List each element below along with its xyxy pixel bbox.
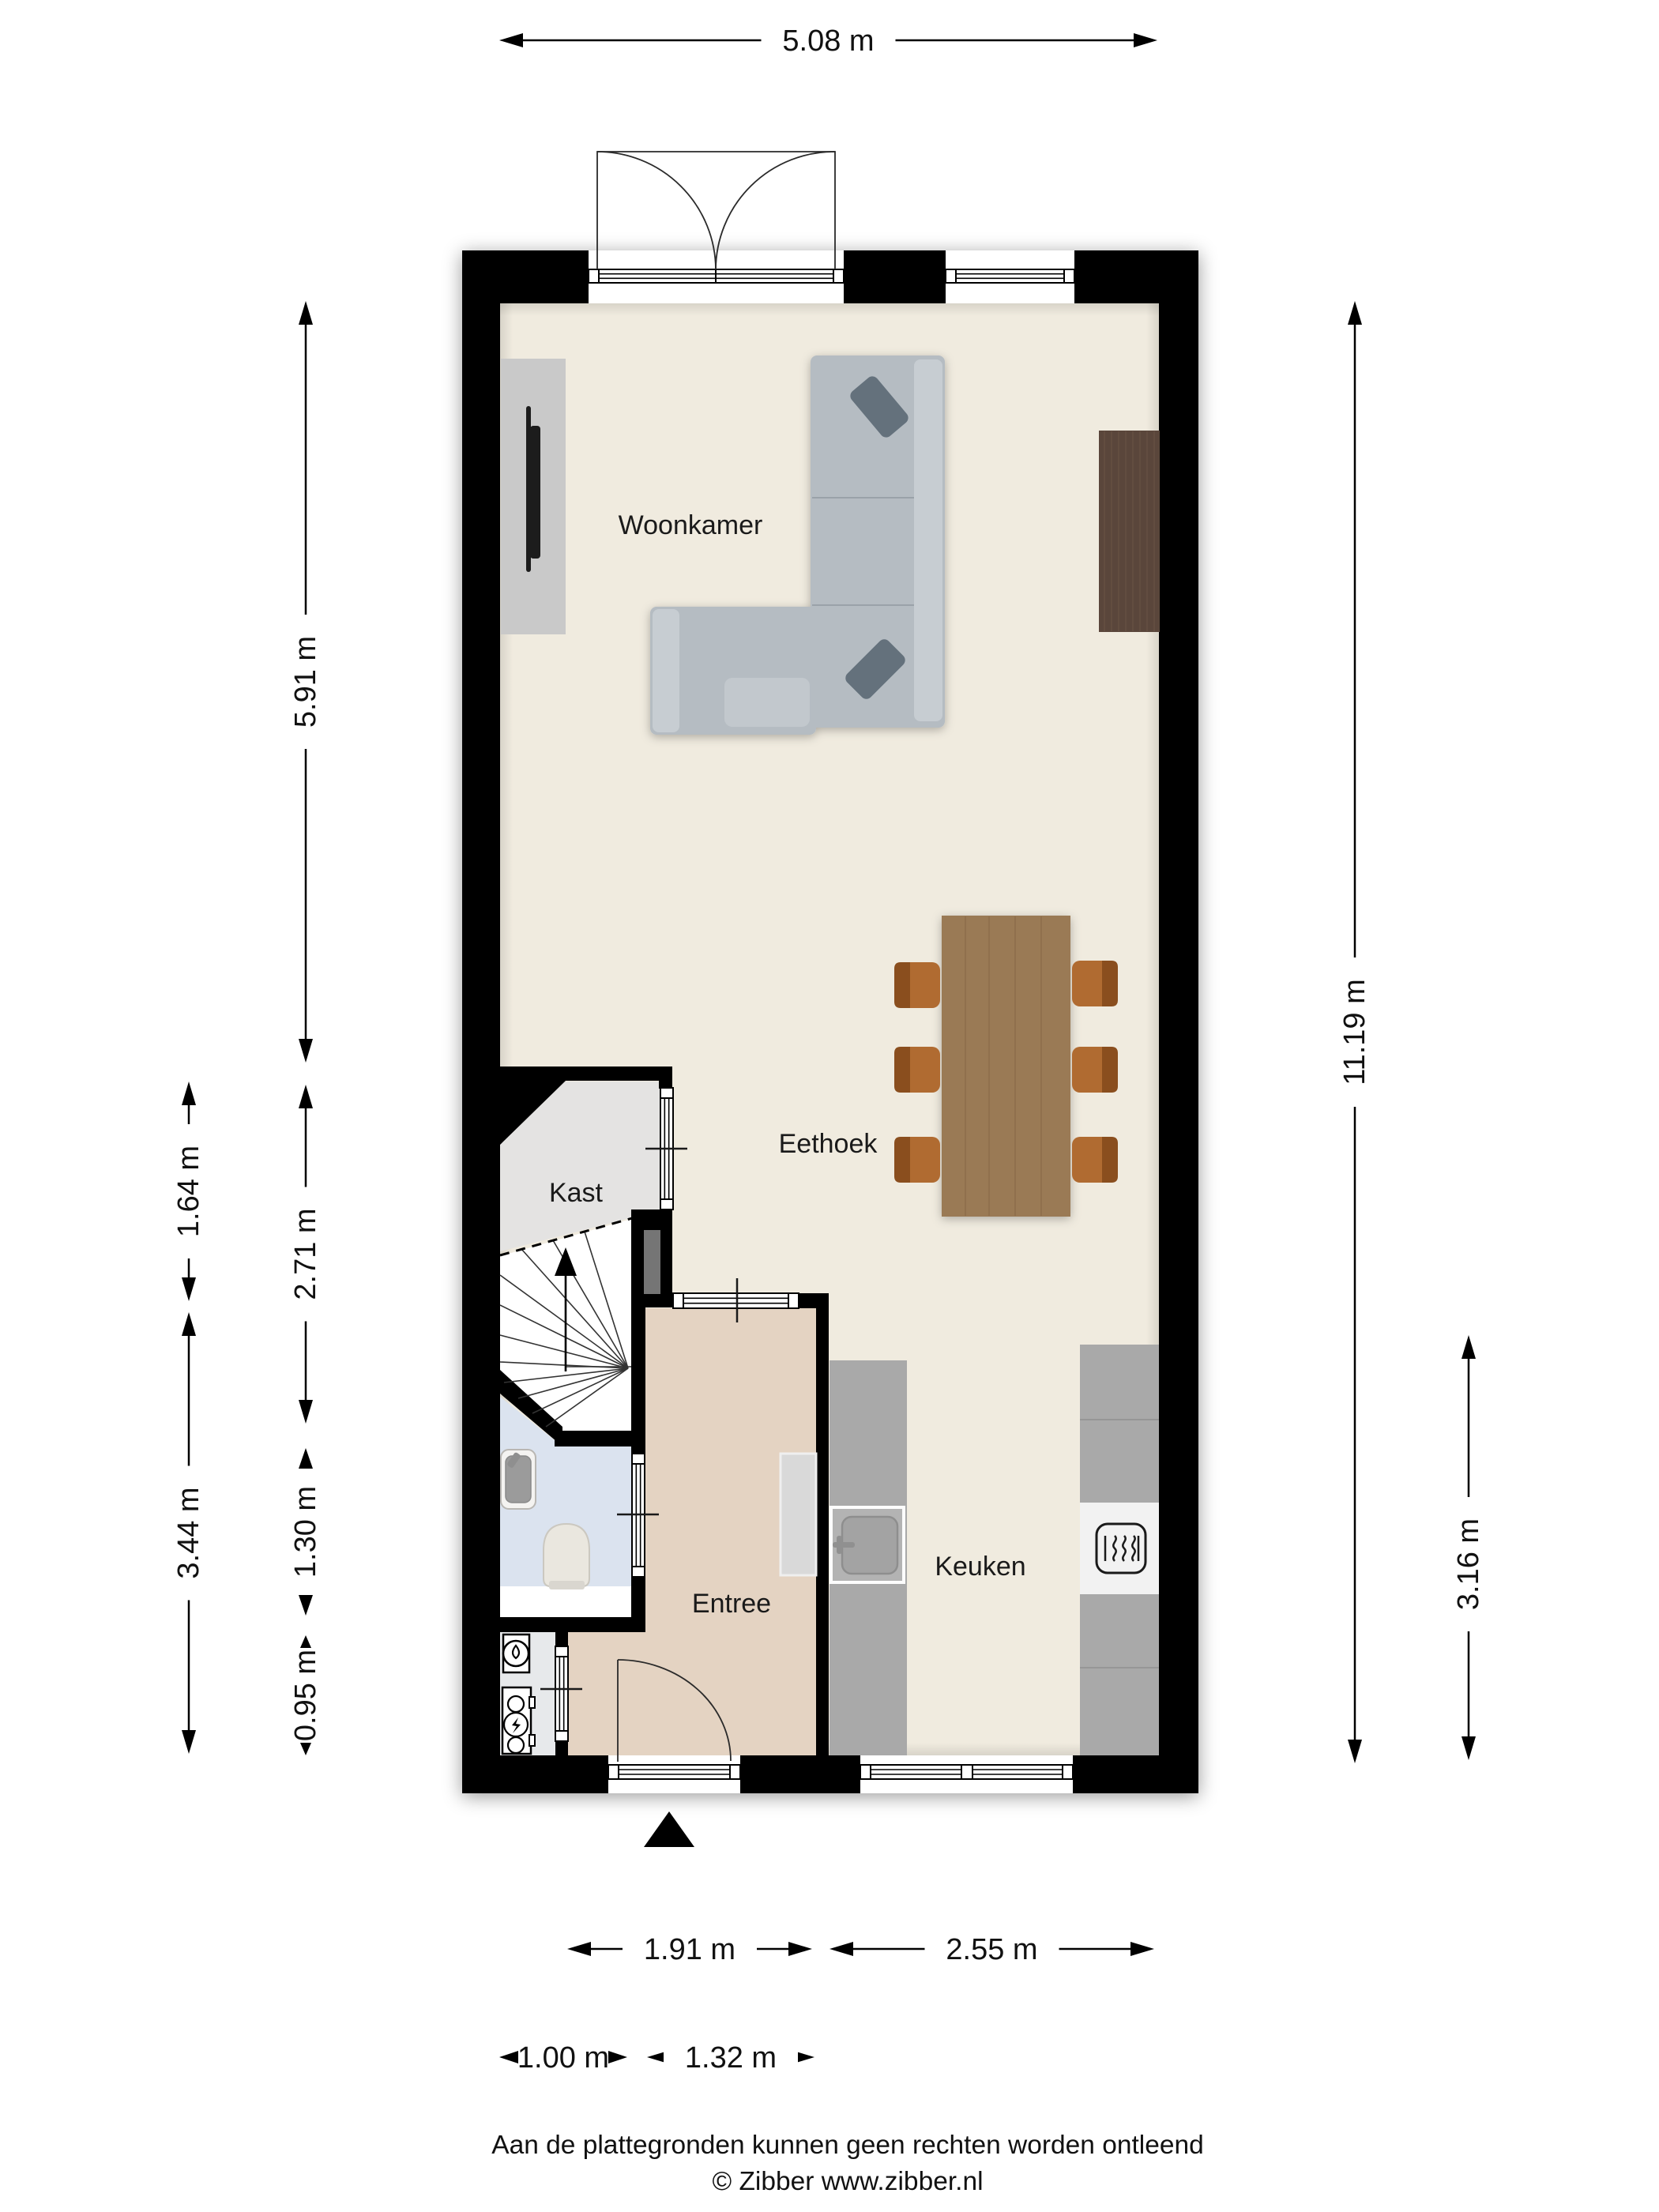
svg-text:Keuken: Keuken: [935, 1552, 1025, 1582]
svg-text:11.19 m: 11.19 m: [1338, 979, 1371, 1085]
svg-text:1.32 m: 1.32 m: [685, 2041, 777, 2075]
svg-text:2.55 m: 2.55 m: [946, 1933, 1037, 1966]
svg-text:5.91 m: 5.91 m: [289, 636, 322, 728]
svg-text:3.16 m: 3.16 m: [1452, 1518, 1485, 1610]
svg-text:0.95 m: 0.95 m: [289, 1650, 322, 1741]
svg-text:© Zibber www.zibber.nl: © Zibber www.zibber.nl: [712, 2167, 983, 2196]
svg-text:1.91 m: 1.91 m: [644, 1933, 735, 1966]
svg-text:Kast: Kast: [549, 1178, 604, 1208]
svg-text:1.64 m: 1.64 m: [172, 1145, 205, 1237]
svg-text:Eethoek: Eethoek: [779, 1129, 878, 1159]
svg-text:5.08 m: 5.08 m: [782, 24, 874, 58]
svg-text:1.30 m: 1.30 m: [289, 1486, 322, 1578]
svg-text:2.71 m: 2.71 m: [289, 1208, 322, 1300]
svg-text:Entree: Entree: [692, 1589, 771, 1619]
svg-text:1.00 m: 1.00 m: [517, 2041, 609, 2075]
svg-text:Aan de plattegronden kunnen ge: Aan de plattegronden kunnen geen rechten…: [491, 2131, 1204, 2160]
svg-text:3.44 m: 3.44 m: [172, 1487, 205, 1578]
svg-text:Woonkamer: Woonkamer: [619, 510, 763, 540]
